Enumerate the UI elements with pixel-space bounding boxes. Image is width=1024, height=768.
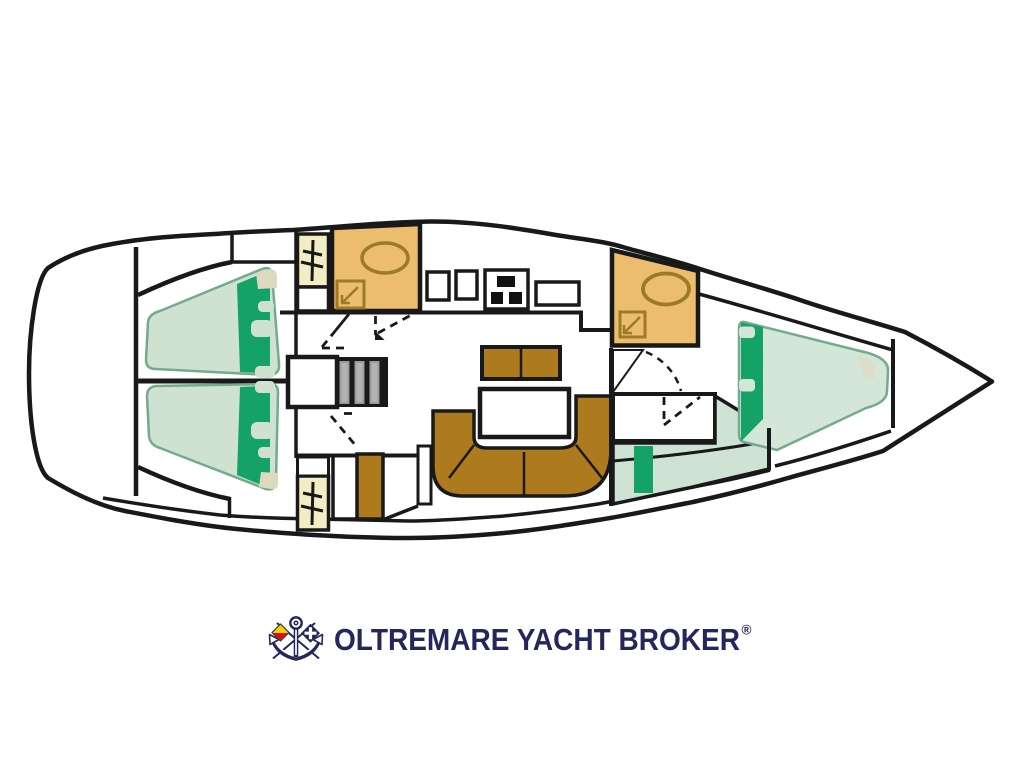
- svg-text:®: ®: [742, 623, 752, 638]
- svg-text:OLTREMARE YACHT BROKER: OLTREMARE YACHT BROKER: [334, 623, 740, 657]
